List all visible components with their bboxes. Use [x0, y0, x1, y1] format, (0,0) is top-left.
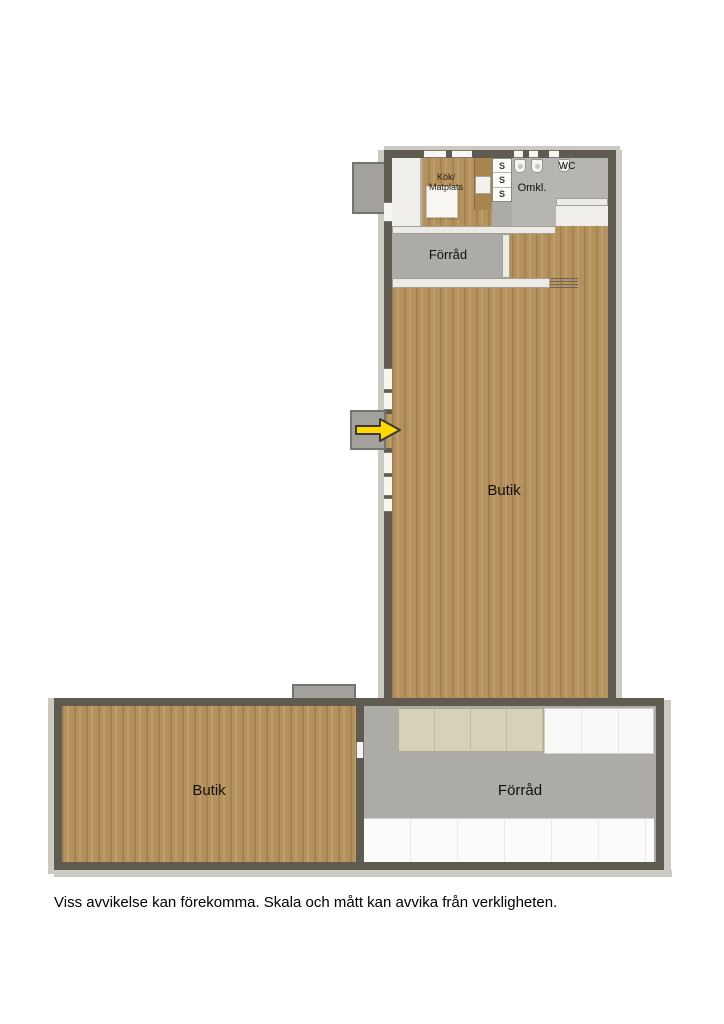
window-opening	[529, 150, 538, 158]
room-label-shop-main: Butik	[454, 482, 554, 499]
room-label-kitchen: Kök/ Matplats	[418, 172, 474, 192]
room-label-storage-upper: Förråd	[398, 247, 498, 262]
wall-divider	[356, 706, 364, 862]
entrance-arrow-icon	[354, 416, 404, 444]
wall-wing-right	[608, 150, 616, 706]
window	[384, 498, 392, 512]
wall-below-wc	[556, 198, 608, 206]
upper-dock	[352, 162, 386, 214]
wall-below-kitchen-row	[392, 226, 556, 234]
kitchen-sink	[475, 176, 491, 194]
disclaimer-text: Viss avvikelse kan förekomma. Skala och …	[54, 894, 557, 911]
window	[384, 476, 392, 496]
locker-cabinet: S S S	[492, 158, 512, 202]
divider-door-opening	[356, 742, 364, 758]
window	[384, 392, 392, 410]
wing-base-right	[616, 150, 622, 706]
wall-wing-top	[384, 150, 616, 158]
storage-shelf-row	[364, 818, 654, 862]
sliding-door	[550, 278, 578, 288]
storage-shelf-beige	[398, 708, 544, 752]
entry-room-floor	[392, 158, 422, 226]
sink-fixture	[531, 159, 543, 173]
window-opening	[549, 150, 559, 158]
locker-cell-label: S	[493, 159, 511, 173]
room-label-wc: WC	[552, 161, 582, 172]
storage-shelf-white	[544, 708, 654, 754]
window-opening	[514, 150, 523, 158]
kitchen-label-line1: Kök/	[437, 172, 455, 182]
room-label-storage-lower: Förråd	[470, 782, 570, 799]
door-opening	[424, 150, 446, 158]
window	[384, 452, 392, 474]
area-below-wc	[556, 206, 608, 226]
window	[384, 202, 392, 222]
wall-strip-top	[54, 698, 664, 706]
strip-base-right	[664, 700, 671, 877]
door-opening	[452, 150, 472, 158]
sink-fixture	[514, 159, 526, 173]
strip-base-bottom	[54, 870, 672, 877]
room-label-changing: Omkl.	[508, 182, 556, 194]
room-label-shop-lower: Butik	[159, 782, 259, 799]
corridor-floor	[492, 202, 512, 226]
wall-storage-upper-right	[502, 234, 510, 278]
floorplan-canvas: S S S Kö	[0, 0, 724, 1024]
wall-below-storage-upper	[392, 278, 550, 288]
wall-strip-left	[54, 698, 62, 870]
wall-strip-right	[656, 698, 664, 870]
window	[384, 368, 392, 390]
wall-strip-bottom	[54, 862, 664, 870]
kitchen-label-line2: Matplats	[429, 182, 463, 192]
